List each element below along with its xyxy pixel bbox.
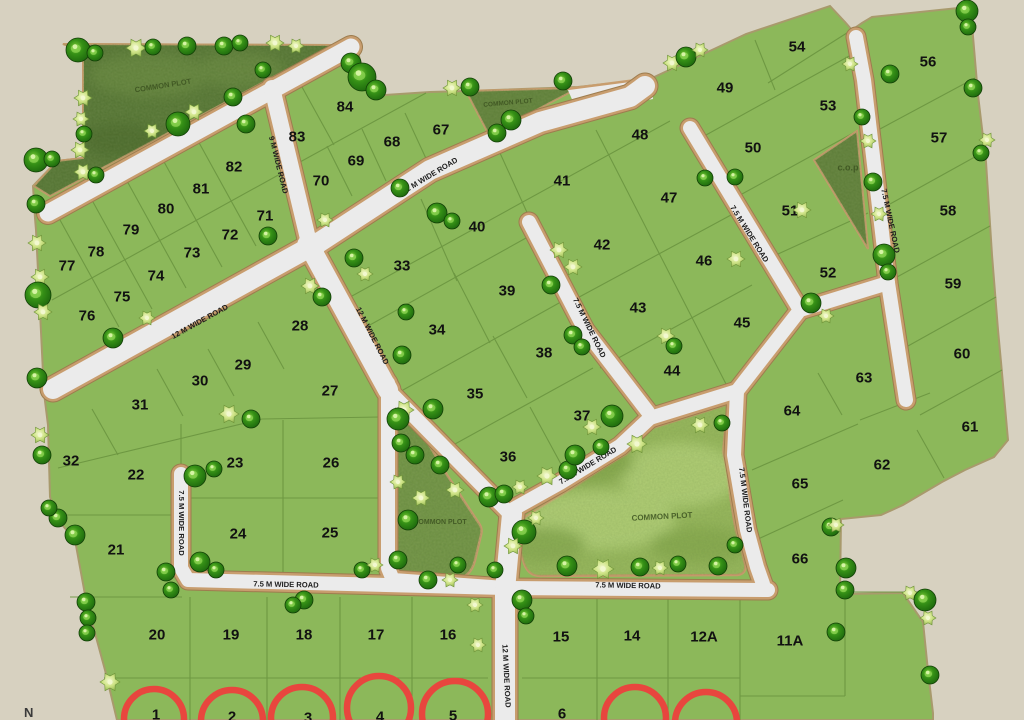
svg-text:16: 16 [440,627,457,644]
svg-text:6: 6 [558,706,566,720]
svg-text:44: 44 [664,363,681,380]
svg-text:78: 78 [88,244,105,261]
svg-text:3: 3 [304,710,312,720]
svg-text:83: 83 [289,129,306,146]
svg-text:72: 72 [222,227,239,244]
svg-text:18: 18 [296,627,313,644]
svg-text:N: N [24,705,33,720]
svg-text:79: 79 [123,222,140,239]
svg-text:19: 19 [223,627,240,644]
svg-text:74: 74 [148,268,165,285]
svg-text:80: 80 [158,201,175,218]
svg-text:22: 22 [128,467,145,484]
svg-text:84: 84 [337,99,354,116]
svg-text:52: 52 [820,265,837,282]
svg-text:53: 53 [820,98,837,115]
svg-text:82: 82 [226,159,243,176]
svg-text:23: 23 [227,455,244,472]
svg-text:60: 60 [954,346,971,363]
svg-text:31: 31 [132,397,149,414]
svg-text:7.5 M WIDE ROAD: 7.5 M WIDE ROAD [253,579,319,589]
svg-text:20: 20 [149,627,166,644]
svg-text:68: 68 [384,134,401,151]
svg-text:61: 61 [962,419,979,436]
svg-text:48: 48 [632,127,649,144]
svg-text:27: 27 [322,383,339,400]
svg-text:7.5 M WIDE ROAD: 7.5 M WIDE ROAD [595,580,661,590]
svg-text:43: 43 [630,300,647,317]
svg-text:33: 33 [394,258,411,275]
svg-text:c.o.p: c.o.p [837,162,859,172]
svg-text:47: 47 [661,190,678,207]
svg-text:62: 62 [874,457,891,474]
svg-text:81: 81 [193,181,210,198]
svg-text:49: 49 [717,80,734,97]
svg-text:73: 73 [184,245,201,262]
svg-text:57: 57 [931,130,948,147]
svg-text:11A: 11A [777,633,804,650]
svg-text:2: 2 [228,709,236,720]
svg-text:69: 69 [348,153,365,170]
svg-text:1: 1 [152,707,160,720]
svg-text:77: 77 [59,258,76,275]
svg-text:4: 4 [376,709,385,720]
svg-text:56: 56 [920,54,937,71]
svg-text:45: 45 [734,315,751,332]
svg-text:65: 65 [792,476,809,493]
svg-text:63: 63 [856,370,873,387]
svg-text:42: 42 [594,237,611,254]
svg-text:75: 75 [114,289,131,306]
svg-text:76: 76 [79,308,96,325]
svg-text:71: 71 [257,208,274,225]
svg-text:24: 24 [230,526,247,543]
svg-text:25: 25 [322,525,339,542]
svg-text:64: 64 [784,403,801,420]
svg-text:46: 46 [696,253,713,270]
svg-text:70: 70 [313,173,330,190]
svg-text:58: 58 [940,203,957,220]
svg-text:36: 36 [500,449,517,466]
svg-text:32: 32 [63,453,80,470]
svg-text:67: 67 [433,122,450,139]
svg-text:59: 59 [945,276,962,293]
svg-text:15: 15 [553,629,570,646]
svg-text:29: 29 [235,357,252,374]
svg-text:39: 39 [499,283,516,300]
svg-text:66: 66 [792,551,809,568]
svg-text:COMMON PLOT: COMMON PLOT [413,519,467,526]
svg-text:40: 40 [469,219,486,236]
svg-text:12A: 12A [690,629,718,646]
svg-text:41: 41 [554,173,571,190]
svg-text:14: 14 [624,628,641,645]
svg-text:28: 28 [292,318,309,335]
svg-text:50: 50 [745,140,762,157]
svg-text:26: 26 [323,455,340,472]
svg-text:17: 17 [368,627,385,644]
svg-text:5: 5 [449,708,457,720]
svg-text:34: 34 [429,322,446,339]
svg-text:21: 21 [108,542,125,559]
svg-text:7.5 M WIDE ROAD: 7.5 M WIDE ROAD [177,490,186,556]
svg-text:38: 38 [536,345,553,362]
svg-text:54: 54 [789,39,806,56]
svg-text:30: 30 [192,373,209,390]
svg-text:35: 35 [467,386,484,403]
